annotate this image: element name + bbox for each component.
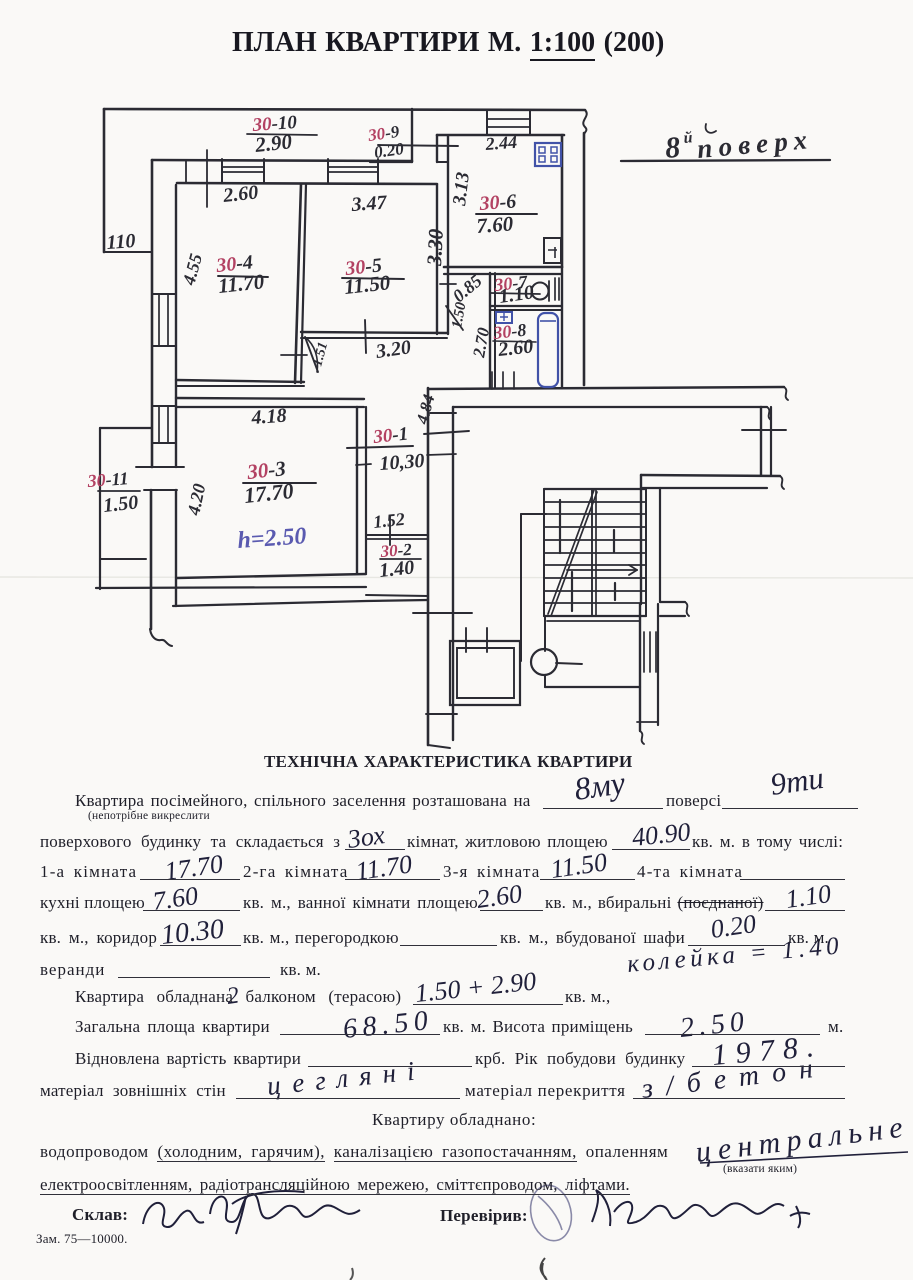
- svg-text:2.60: 2.60: [475, 879, 524, 914]
- svg-text:4.84: 4.84: [412, 392, 438, 427]
- svg-text:1.52: 1.52: [372, 509, 405, 532]
- svg-text:3.47: 3.47: [350, 192, 388, 217]
- svg-text:й: й: [683, 129, 693, 147]
- svg-text:17.70: 17.70: [243, 478, 295, 508]
- svg-text:11.70: 11.70: [217, 269, 266, 298]
- svg-text:7.60: 7.60: [476, 211, 515, 238]
- svg-text:8: 8: [664, 131, 682, 165]
- svg-text:0.20: 0.20: [709, 909, 758, 944]
- svg-text:4.20: 4.20: [183, 482, 209, 518]
- svg-text:30-11: 30-11: [86, 468, 129, 491]
- svg-text:1.50: 1.50: [102, 491, 139, 517]
- svg-text:68.50: 68.50: [341, 1005, 429, 1045]
- svg-text:40.90: 40.90: [631, 817, 692, 852]
- svg-text:1.50: 1.50: [449, 301, 469, 330]
- svg-text:1.51: 1.51: [310, 340, 331, 368]
- svg-text:2.90: 2.90: [253, 129, 294, 157]
- svg-text:3.30: 3.30: [422, 228, 448, 267]
- svg-text:1.10: 1.10: [784, 879, 833, 914]
- svg-text:11.70: 11.70: [354, 849, 414, 886]
- svg-text:110: 110: [106, 230, 136, 254]
- svg-text:4.18: 4.18: [250, 405, 287, 429]
- svg-text:2.60: 2.60: [496, 335, 534, 361]
- svg-text:30-1: 30-1: [371, 423, 409, 448]
- svg-text:10,30: 10,30: [379, 450, 425, 475]
- svg-text:4.55: 4.55: [178, 251, 206, 288]
- svg-text:2.44: 2.44: [484, 132, 518, 154]
- svg-text:h=2.50: h=2.50: [237, 523, 308, 554]
- svg-text:0.20: 0.20: [373, 139, 406, 162]
- svg-text:3.20: 3.20: [374, 336, 413, 363]
- svg-text:центральне: центральне: [694, 1111, 904, 1169]
- svg-text:9ти: 9ти: [768, 760, 826, 802]
- svg-text:1.10: 1.10: [498, 281, 536, 308]
- svg-text:1.40: 1.40: [378, 556, 415, 582]
- svg-text:11.50: 11.50: [343, 270, 392, 299]
- svg-text:2.60: 2.60: [221, 181, 259, 207]
- svg-text:поверх: поверх: [696, 125, 808, 164]
- svg-text:0.85: 0.85: [449, 270, 486, 306]
- svg-text:3.13: 3.13: [449, 171, 474, 208]
- svg-text:1.50 + 2.90: 1.50 + 2.90: [414, 966, 538, 1008]
